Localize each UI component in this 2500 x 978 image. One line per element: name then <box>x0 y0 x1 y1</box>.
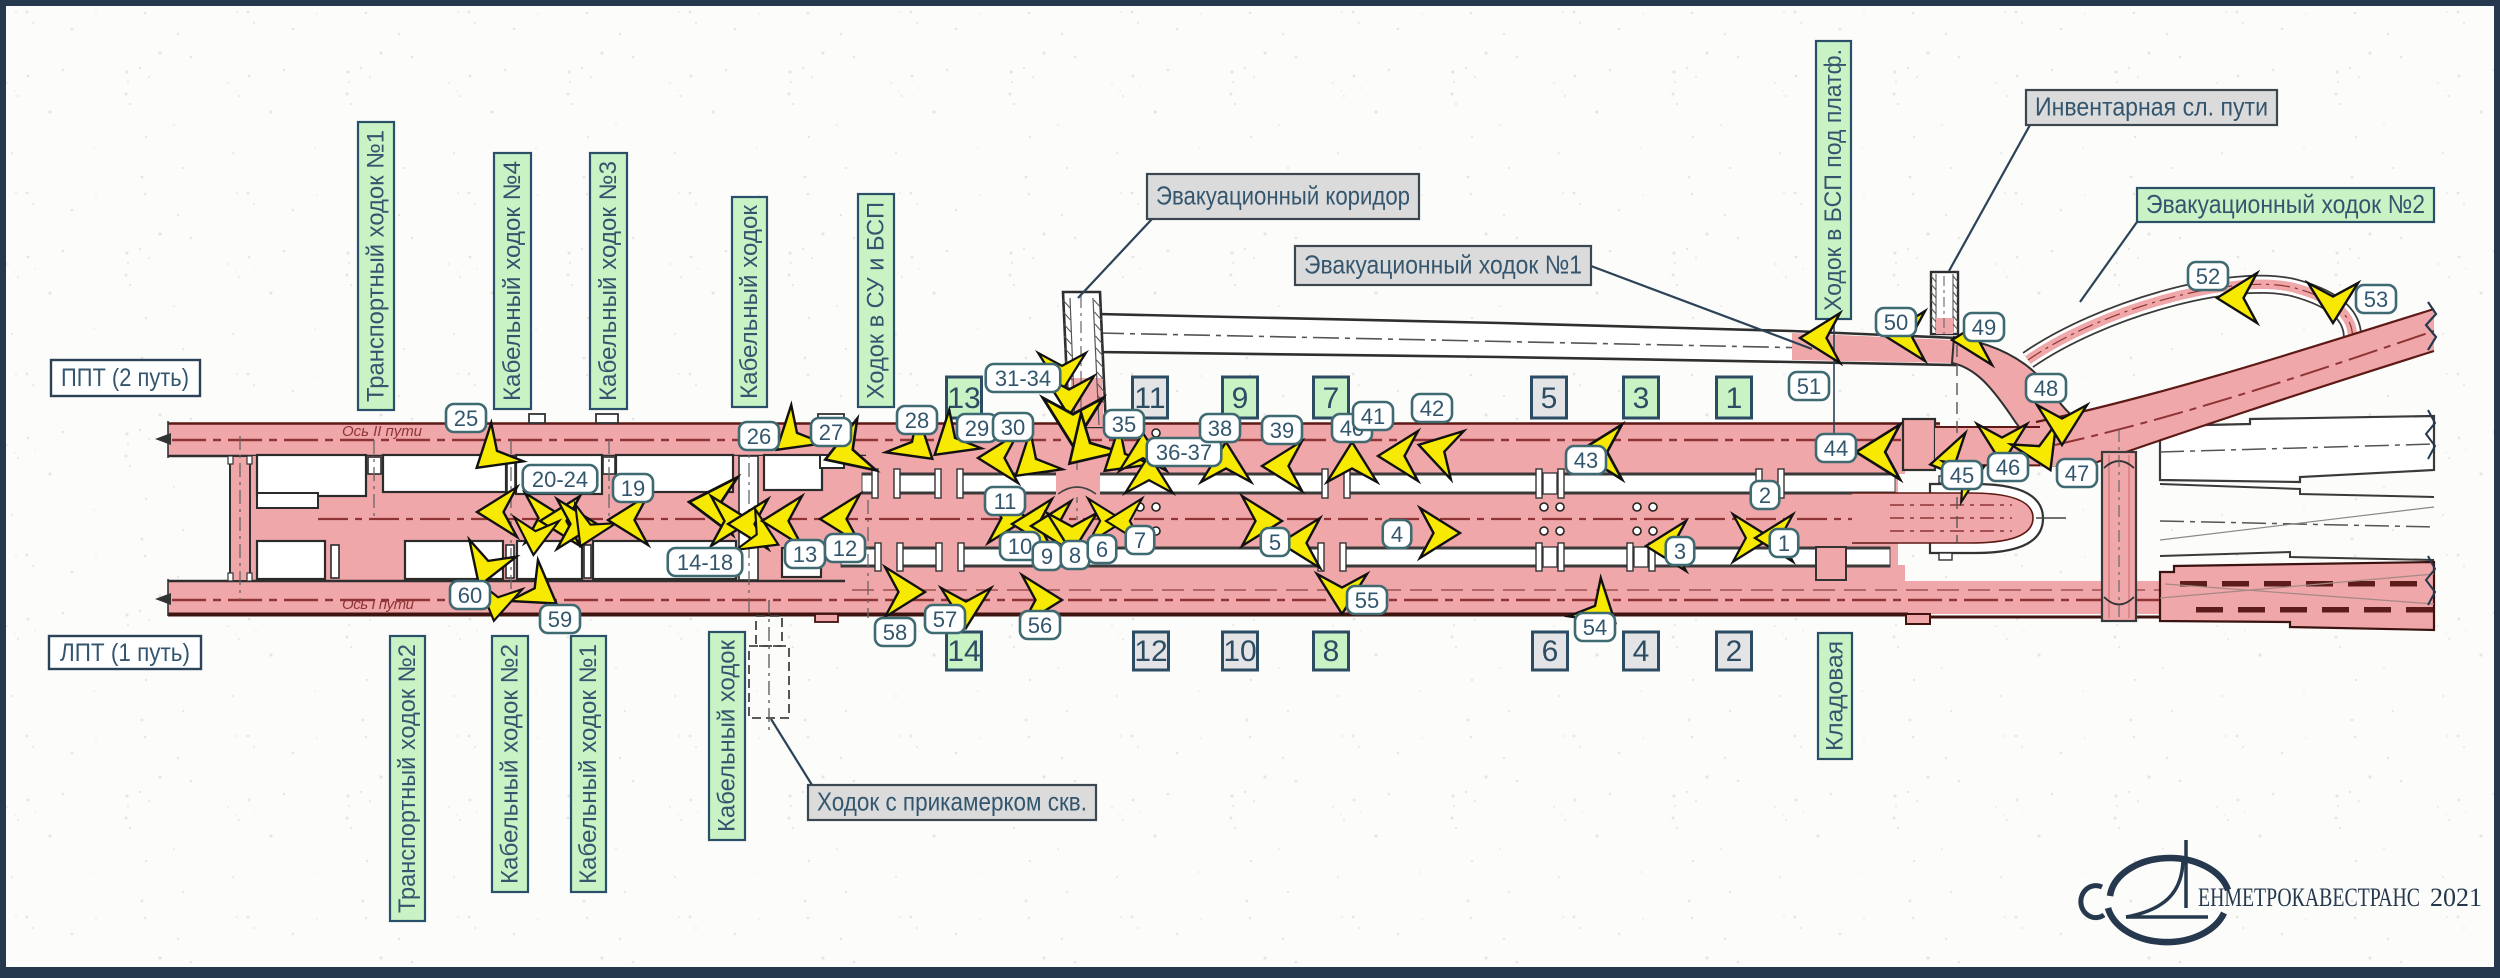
svg-text:5: 5 <box>1269 530 1281 555</box>
svg-text:2: 2 <box>1726 635 1743 668</box>
svg-text:7: 7 <box>1323 382 1340 415</box>
svg-text:10: 10 <box>1008 534 1032 559</box>
svg-text:58: 58 <box>883 620 907 645</box>
svg-text:35: 35 <box>1112 412 1136 437</box>
svg-text:45: 45 <box>1950 463 1974 488</box>
svg-text:Кабельный ходок №1: Кабельный ходок №1 <box>575 644 602 884</box>
svg-text:31-34: 31-34 <box>995 366 1051 391</box>
svg-text:Кабельный ходок №4: Кабельный ходок №4 <box>499 161 526 401</box>
svg-text:38: 38 <box>1208 416 1232 441</box>
svg-text:19: 19 <box>621 476 645 501</box>
svg-text:ППТ (2 путь): ППТ (2 путь) <box>61 364 189 392</box>
svg-text:48: 48 <box>2034 376 2058 401</box>
svg-text:59: 59 <box>548 607 572 632</box>
svg-text:Транспортный ходок №2: Транспортный ходок №2 <box>394 644 421 913</box>
svg-text:Ось II пути: Ось II пути <box>342 423 423 440</box>
svg-text:50: 50 <box>1884 310 1908 335</box>
svg-text:5: 5 <box>1541 382 1558 415</box>
svg-text:14: 14 <box>947 635 980 668</box>
svg-text:Ходок в БСП под платф.: Ходок в БСП под платф. <box>1820 49 1847 311</box>
svg-text:11: 11 <box>994 489 1017 514</box>
svg-text:1: 1 <box>1778 531 1790 556</box>
svg-text:39: 39 <box>1270 418 1294 443</box>
svg-text:3: 3 <box>1674 539 1686 564</box>
svg-text:3: 3 <box>1633 382 1650 415</box>
svg-text:60: 60 <box>458 583 482 608</box>
svg-text:27: 27 <box>819 420 843 445</box>
svg-text:13: 13 <box>793 542 817 567</box>
svg-text:6: 6 <box>1542 635 1559 668</box>
svg-text:Ось I пути: Ось I пути <box>342 596 415 613</box>
svg-text:47: 47 <box>2065 461 2089 486</box>
svg-text:13: 13 <box>947 382 980 415</box>
svg-text:12: 12 <box>1134 635 1167 668</box>
svg-text:30: 30 <box>1001 415 1025 440</box>
svg-text:29: 29 <box>965 416 989 441</box>
svg-text:36-37: 36-37 <box>1156 440 1212 465</box>
svg-text:53: 53 <box>2364 287 2388 312</box>
svg-text:49: 49 <box>1972 315 1996 340</box>
svg-text:Кабельный ходок №2: Кабельный ходок №2 <box>497 644 524 884</box>
svg-text:2021: 2021 <box>2430 883 2482 912</box>
svg-text:6: 6 <box>1096 537 1108 562</box>
svg-text:Эвакуационный ходок №1: Эвакуационный ходок №1 <box>1304 250 1582 280</box>
svg-text:41: 41 <box>1361 404 1385 429</box>
svg-text:12: 12 <box>833 536 857 561</box>
svg-text:4: 4 <box>1391 522 1403 547</box>
svg-text:Кабельный ходок №3: Кабельный ходок №3 <box>595 161 622 401</box>
svg-text:8: 8 <box>1323 635 1340 668</box>
svg-text:7: 7 <box>1134 528 1146 553</box>
svg-text:10: 10 <box>1223 635 1256 668</box>
svg-text:52: 52 <box>2196 264 2220 289</box>
svg-text:Ходок в СУ и БСП: Ходок в СУ и БСП <box>863 202 890 399</box>
svg-text:20-24: 20-24 <box>532 467 588 492</box>
svg-text:44: 44 <box>1824 436 1848 461</box>
svg-text:4: 4 <box>1633 635 1650 668</box>
svg-text:51: 51 <box>1797 374 1821 399</box>
svg-text:Кабельный ходок: Кабельный ходок <box>714 640 741 832</box>
svg-text:2: 2 <box>1759 483 1771 508</box>
svg-text:Эвакуационный коридор: Эвакуационный коридор <box>1156 181 1410 211</box>
svg-text:9: 9 <box>1232 382 1249 415</box>
svg-text:42: 42 <box>1420 396 1444 421</box>
svg-text:43: 43 <box>1574 448 1598 473</box>
svg-text:Кладовая: Кладовая <box>1822 641 1849 751</box>
svg-text:8: 8 <box>1069 543 1081 568</box>
svg-text:25: 25 <box>454 406 478 431</box>
svg-text:26: 26 <box>747 424 771 449</box>
svg-text:Эвакуационный ходок №2: Эвакуационный ходок №2 <box>2146 189 2425 219</box>
svg-text:14-18: 14-18 <box>677 550 733 575</box>
svg-text:Инвентарная сл. пути: Инвентарная сл. пути <box>2035 92 2268 122</box>
svg-text:Кабельный ходок: Кабельный ходок <box>736 204 763 399</box>
svg-text:57: 57 <box>933 607 957 632</box>
svg-text:28: 28 <box>905 408 929 433</box>
svg-text:54: 54 <box>1583 615 1607 640</box>
svg-text:9: 9 <box>1041 544 1053 569</box>
svg-text:ЛПТ (1 путь): ЛПТ (1 путь) <box>60 639 190 667</box>
svg-text:Транспортный ходок №1: Транспортный ходок №1 <box>363 130 390 402</box>
svg-text:55: 55 <box>1355 588 1379 613</box>
svg-text:46: 46 <box>1996 455 2020 480</box>
svg-text:56: 56 <box>1028 613 1052 638</box>
svg-text:Ходок с прикамерком скв.: Ходок с прикамерком скв. <box>817 787 1087 817</box>
svg-text:ЕНМЕТРОКАВЕСТРАНС: ЕНМЕТРОКАВЕСТРАНС <box>2198 883 2420 912</box>
svg-text:1: 1 <box>1726 382 1743 415</box>
